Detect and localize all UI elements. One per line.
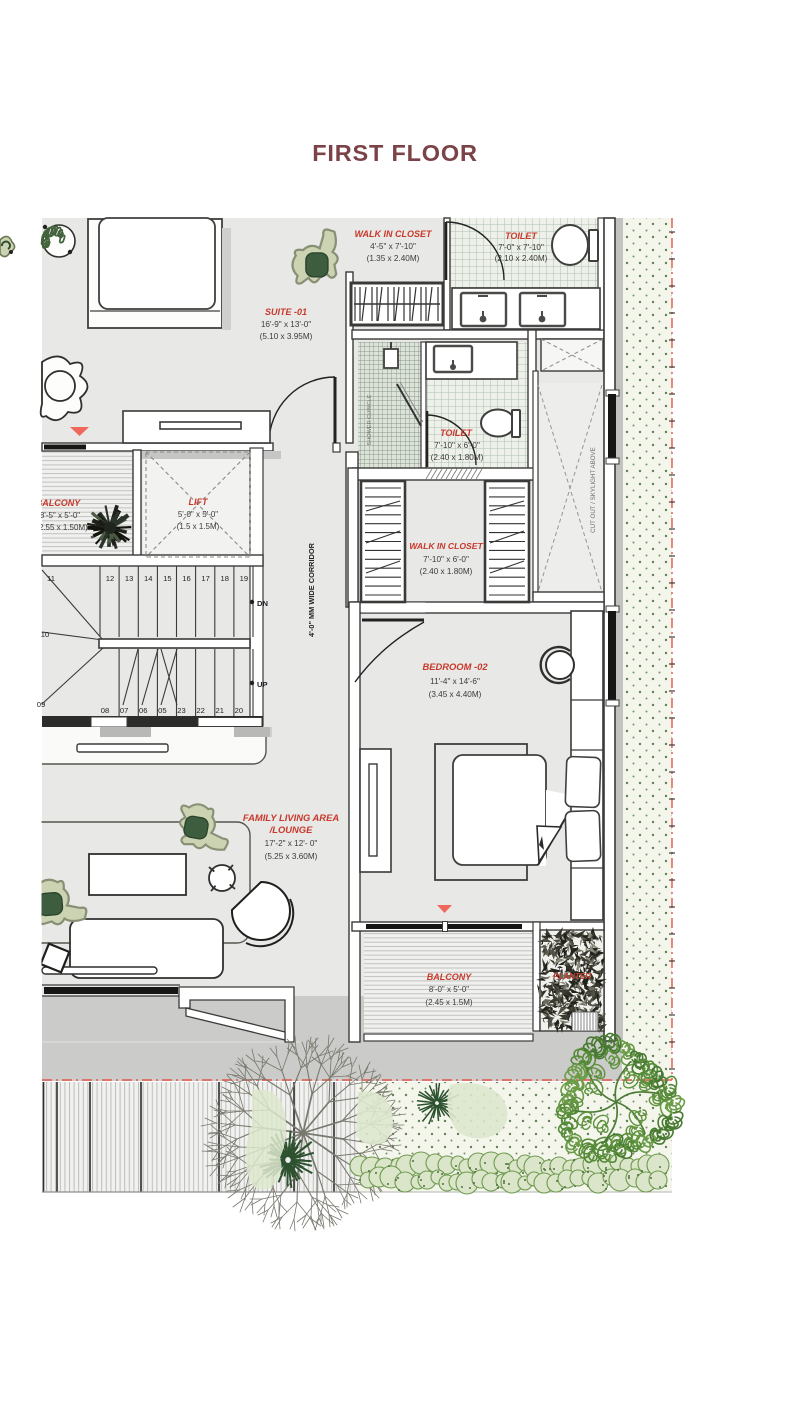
svg-text:23: 23	[177, 706, 185, 715]
svg-text:8'-5" x 5'-0": 8'-5" x 5'-0"	[40, 511, 80, 520]
svg-text:19: 19	[240, 574, 248, 583]
svg-text:17: 17	[201, 574, 209, 583]
svg-text:06: 06	[139, 706, 147, 715]
svg-text:TOILET: TOILET	[505, 231, 538, 241]
svg-text:8'-0" x 5'-0": 8'-0" x 5'-0"	[429, 985, 469, 994]
svg-text:09: 09	[37, 700, 45, 709]
svg-text:14: 14	[144, 574, 152, 583]
svg-text:20: 20	[235, 706, 243, 715]
svg-text:5'-0" x 5'-0": 5'-0" x 5'-0"	[178, 510, 218, 519]
svg-text:BALCONY: BALCONY	[427, 972, 472, 982]
svg-text:FAMILY LIVING AREA: FAMILY LIVING AREA	[243, 812, 339, 823]
svg-text:07: 07	[120, 706, 128, 715]
svg-text:FIRST FLOOR: FIRST FLOOR	[312, 140, 477, 166]
svg-text:16'-9" x 13'-0": 16'-9" x 13'-0"	[261, 320, 311, 329]
svg-text:11'-4" x 14'-6": 11'-4" x 14'-6"	[430, 677, 480, 686]
svg-text:08: 08	[101, 706, 109, 715]
svg-text:16: 16	[182, 574, 190, 583]
svg-text:13: 13	[125, 574, 133, 583]
svg-text:7'-0" x 7'-10": 7'-0" x 7'-10"	[498, 243, 544, 252]
svg-text:TOILET: TOILET	[440, 428, 473, 438]
svg-text:4'-5" x 7'-10": 4'-5" x 7'-10"	[370, 242, 416, 251]
svg-text:11: 11	[47, 574, 55, 583]
svg-text:/LOUNGE: /LOUNGE	[269, 824, 313, 835]
svg-text:(3.45 x 4.40M): (3.45 x 4.40M)	[429, 690, 482, 699]
svg-text:(2.55 x 1.50M): (2.55 x 1.50M)	[36, 523, 88, 532]
svg-text:SHOWER CUBICLE: SHOWER CUBICLE	[367, 394, 373, 445]
svg-text:15: 15	[163, 574, 171, 583]
svg-text:WALK IN CLOSET: WALK IN CLOSET	[409, 541, 483, 551]
svg-text:7'-10" x 6'-0": 7'-10" x 6'-0"	[434, 441, 480, 450]
svg-text:LIFT: LIFT	[189, 497, 209, 507]
svg-text:(1.5 x 1.5M): (1.5 x 1.5M)	[177, 522, 220, 531]
svg-text:10: 10	[41, 630, 49, 639]
svg-text:BEDROOM -02: BEDROOM -02	[422, 661, 488, 672]
svg-text:SUITE -01: SUITE -01	[265, 307, 307, 317]
svg-text:21: 21	[216, 706, 224, 715]
svg-text:4'-0" MM WIDE CORRIDOR: 4'-0" MM WIDE CORRIDOR	[307, 542, 316, 637]
svg-text:18: 18	[221, 574, 229, 583]
svg-text:05: 05	[158, 706, 166, 715]
svg-text:(1.35 x 2.40M): (1.35 x 2.40M)	[367, 254, 420, 263]
svg-text:(2.10 x 2.40M): (2.10 x 2.40M)	[495, 254, 548, 263]
svg-text:PLANTER: PLANTER	[553, 972, 591, 981]
svg-text:(5.10 x 3.95M): (5.10 x 3.95M)	[260, 332, 313, 341]
svg-text:BALCONY: BALCONY	[36, 498, 81, 508]
svg-text:17'-2" x 12'- 0": 17'-2" x 12'- 0"	[265, 839, 318, 848]
svg-text:UP: UP	[257, 680, 268, 689]
svg-text:(5.25 x 3.60M): (5.25 x 3.60M)	[265, 852, 318, 861]
svg-text:DN: DN	[257, 599, 268, 608]
svg-text:22: 22	[196, 706, 204, 715]
svg-text:12: 12	[106, 574, 114, 583]
svg-text:(2.40 x 1.80M): (2.40 x 1.80M)	[431, 453, 484, 462]
svg-text:WALK IN CLOSET: WALK IN CLOSET	[355, 229, 433, 239]
svg-text:(2.45 x 1.5M): (2.45 x 1.5M)	[425, 998, 472, 1007]
svg-text:(2.40 x 1.80M): (2.40 x 1.80M)	[420, 567, 473, 576]
svg-text:CUT OUT / SKYLIGHT ABOVE: CUT OUT / SKYLIGHT ABOVE	[590, 447, 597, 533]
svg-text:7'-10" x 6'-0": 7'-10" x 6'-0"	[423, 555, 469, 564]
